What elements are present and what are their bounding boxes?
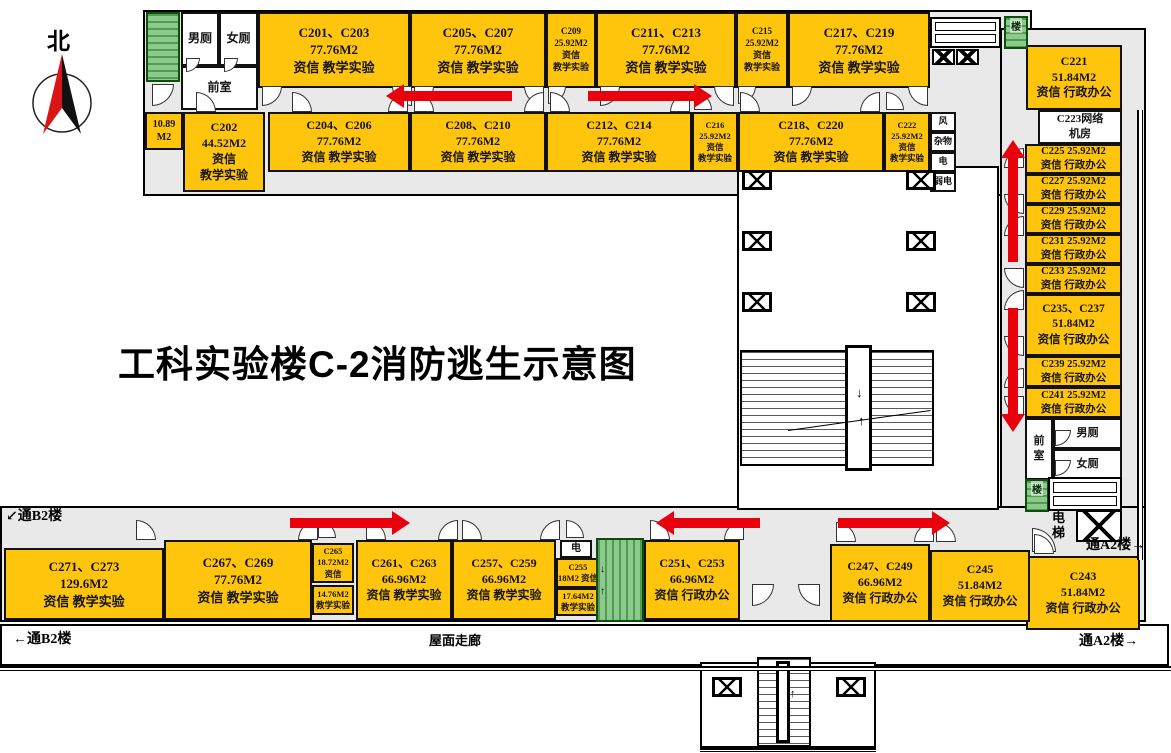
diagram-title: 工科实验楼C-2消防逃生示意图 bbox=[118, 334, 637, 388]
room-wc-men-se-label: 男厕 bbox=[1077, 426, 1099, 441]
arrow-bottom-center-head bbox=[656, 511, 674, 535]
room-c235-c237-label: 51.84M2 bbox=[1052, 317, 1094, 332]
room-c255-label: C255 bbox=[569, 562, 588, 573]
room-c208-c210-label: 资信 教学实验 bbox=[440, 150, 515, 166]
room-c239-label: C239 25.92M2 bbox=[1041, 358, 1106, 372]
slots-north-slot bbox=[935, 34, 996, 43]
room-svc-weak-electric-label: 弱电 bbox=[934, 176, 952, 188]
room-c201-c203-label: 资信 教学实验 bbox=[293, 59, 374, 76]
room-c205-c207-label: 77.76M2 bbox=[454, 41, 502, 58]
room-c243-label: 51.84M2 bbox=[1061, 585, 1105, 601]
room-c247-c249-label: C247、C249 bbox=[847, 559, 912, 575]
room-c222: C22225.92M2资信教学实验 bbox=[884, 112, 930, 172]
room-svc-electric-south-label: 电 bbox=[571, 542, 581, 555]
room-c231-label: 资信 行政办公 bbox=[1041, 249, 1107, 263]
room-c201-c203-label: C201、C203 bbox=[299, 24, 370, 41]
room-c233: C233 25.92M2资信 行政办公 bbox=[1025, 264, 1122, 294]
room-c233-label: 资信 行政办公 bbox=[1041, 279, 1107, 293]
room-c255-south-label: 教学实验 bbox=[561, 602, 595, 613]
room-c223-network-room: C223网络机房 bbox=[1038, 110, 1122, 144]
column-icon bbox=[742, 170, 772, 190]
arrow-right-down-body bbox=[1008, 308, 1018, 415]
column-icon bbox=[712, 677, 742, 697]
room-c205-c207: C205、C20777.76M2资信 教学实验 bbox=[410, 12, 546, 88]
room-c241: C241 25.92M2资信 行政办公 bbox=[1025, 387, 1122, 418]
room-c255-south-label: 17.64M2 bbox=[562, 591, 593, 602]
room-c208-c210-label: 77.76M2 bbox=[456, 134, 500, 150]
room-c227-label: C227 25.92M2 bbox=[1041, 175, 1106, 189]
slots-southeast bbox=[1048, 477, 1122, 511]
room-c218-c220-label: 资信 教学实验 bbox=[773, 150, 848, 166]
room-c215-label: C215 bbox=[752, 26, 772, 38]
room-vestibule-nw: 前室 bbox=[181, 66, 258, 110]
room-c208-c210: C208、C21077.76M2资信 教学实验 bbox=[410, 112, 546, 172]
room-c265-south-label: 教学实验 bbox=[316, 600, 350, 611]
room-c245-label: 51.84M2 bbox=[958, 578, 1002, 594]
room-c222-label: C222 bbox=[898, 120, 917, 131]
room-c223-network-room-label: C223网络 bbox=[1057, 112, 1103, 127]
arrow-top-west-body bbox=[403, 91, 512, 101]
room-c215: C21525.92M2资信教学实验 bbox=[736, 12, 788, 88]
room-vestibule-se-label: 室 bbox=[1034, 449, 1045, 464]
room-c215-label: 资信 bbox=[753, 50, 771, 62]
room-c247-c249: C247、C24966.96M2资信 行政办公 bbox=[830, 544, 930, 622]
column-icon bbox=[742, 292, 772, 312]
room-c209-label: 资信 bbox=[562, 50, 580, 62]
room-c215-label: 25.92M2 bbox=[745, 38, 778, 50]
room-c267-c269-label: 资信 教学实验 bbox=[197, 589, 278, 606]
room-wc-women-se-label: 女厕 bbox=[1077, 457, 1099, 472]
room-c229-label: C229 25.92M2 bbox=[1041, 205, 1106, 219]
room-wc-men-nw-label: 男厕 bbox=[188, 31, 212, 47]
room-c241-label: 资信 行政办公 bbox=[1041, 403, 1107, 417]
room-wc-women-nw-label: 女厕 bbox=[226, 31, 250, 47]
room-c212-c214-label: 77.76M2 bbox=[597, 134, 641, 150]
room-c217-c219: C217、C21977.76M2资信 教学实验 bbox=[788, 12, 930, 88]
room-c265-south-label: 14.76M2 bbox=[317, 589, 348, 600]
room-c221-label: 资信 行政办公 bbox=[1036, 85, 1111, 101]
room-c271-c273-label: C271、C273 bbox=[49, 558, 120, 575]
room-c212-c214-label: 资信 教学实验 bbox=[581, 150, 656, 166]
arrow-top-west-head bbox=[386, 84, 404, 108]
room-c233-label: C233 25.92M2 bbox=[1041, 265, 1106, 279]
room-c211-c213-label: 资信 教学实验 bbox=[625, 59, 706, 76]
room-c218-c220: C218、C22077.76M2资信 教学实验 bbox=[738, 112, 884, 172]
room-c257-c259: C257、C25966.96M2资信 教学实验 bbox=[452, 540, 556, 620]
room-c265: C26518.72M2资信 bbox=[312, 543, 354, 583]
room-c265-label: C265 bbox=[324, 546, 343, 557]
room-c225-label: C225 25.92M2 bbox=[1041, 145, 1106, 159]
stair-northeast: 楼 bbox=[1004, 16, 1028, 49]
room-svc-electric-label: 电 bbox=[938, 156, 947, 168]
room-c212-c214-label: C212、C214 bbox=[586, 118, 651, 134]
room-c229: C229 25.92M2资信 行政办公 bbox=[1025, 204, 1122, 234]
room-c247-c249-label: 资信 行政办公 bbox=[842, 591, 917, 607]
arrow-bottom-west-body bbox=[290, 518, 393, 528]
slots-north bbox=[930, 17, 1001, 48]
room-c271-c273-label: 资信 教学实验 bbox=[43, 593, 124, 610]
column-icon bbox=[742, 231, 772, 251]
arrow-top-east-body bbox=[588, 91, 695, 101]
room-c227-label: 资信 行政办公 bbox=[1041, 189, 1107, 203]
floor-plan-canvas: 北 工科实验楼C-2消防逃生示意图 C201、C20377.76M2资信 教学实… bbox=[0, 0, 1171, 753]
room-c251-c253: C251、C25366.96M2资信 行政办公 bbox=[644, 540, 740, 620]
wall-roof-south bbox=[0, 666, 1171, 671]
label-stair-arrow-down-central: ↓ bbox=[856, 386, 863, 401]
label-stair-arrow-up-central: ↑ bbox=[858, 414, 865, 429]
room-c216: C21625.92M2资信教学实验 bbox=[692, 112, 738, 172]
room-c216-label: 教学实验 bbox=[698, 153, 732, 164]
room-room-10-89-label: M2 bbox=[157, 131, 171, 144]
room-c255: C25518M2 资信 bbox=[556, 558, 600, 588]
room-c231-label: C231 25.92M2 bbox=[1041, 235, 1106, 249]
room-c221: C22151.84M2资信 行政办公 bbox=[1026, 45, 1122, 110]
room-c208-c210-label: C208、C210 bbox=[445, 118, 510, 134]
label-to-a2-lower: 通A2楼→ bbox=[1076, 634, 1141, 650]
room-room-10-89: 10.89M2 bbox=[145, 112, 183, 150]
room-svc-wind-label: 风 bbox=[938, 116, 947, 128]
room-c245-label: C245 bbox=[967, 562, 994, 578]
room-svc-sundries: 杂物 bbox=[930, 132, 956, 152]
room-c265-south: 14.76M2教学实验 bbox=[312, 585, 354, 615]
column-icon bbox=[906, 292, 936, 312]
room-vestibule-se-label: 前 bbox=[1034, 434, 1045, 449]
label-elevator-se: 电 梯 bbox=[1052, 511, 1065, 540]
room-c222-label: 教学实验 bbox=[890, 153, 924, 164]
room-c261-c263-label: 66.96M2 bbox=[382, 572, 426, 588]
room-c243-label: 资信 行政办公 bbox=[1045, 601, 1120, 617]
room-c204-c206-label: C204、C206 bbox=[306, 118, 371, 134]
arrow-top-east-head bbox=[694, 84, 712, 108]
stair-northwest bbox=[146, 12, 180, 82]
room-c243: C24351.84M2资信 行政办公 bbox=[1026, 556, 1140, 630]
room-c261-c263-label: 资信 教学实验 bbox=[366, 588, 441, 604]
label-to-a2-right: 通A2楼→ bbox=[1086, 538, 1145, 554]
label-to-b2-lower: ←通B2楼 bbox=[10, 632, 74, 648]
room-svc-electric-south: 电 bbox=[560, 540, 592, 558]
room-c225-label: 资信 行政办公 bbox=[1041, 159, 1107, 173]
arrow-bottom-west-head bbox=[392, 511, 410, 535]
elevator-hatch-n2 bbox=[956, 49, 979, 65]
room-c247-c249-label: 66.96M2 bbox=[858, 575, 902, 591]
arrow-bottom-east-head bbox=[932, 511, 950, 535]
room-c202-label: 44.52M2 bbox=[202, 136, 246, 152]
room-c209: C20925.92M2资信教学实验 bbox=[546, 12, 596, 88]
room-c211-c213: C211、C21377.76M2资信 教学实验 bbox=[596, 12, 736, 88]
room-c267-c269-label: C267、C269 bbox=[203, 554, 274, 571]
slots-southeast-slot bbox=[1053, 496, 1117, 507]
slots-southeast-slot bbox=[1053, 482, 1117, 493]
room-c209-label: 25.92M2 bbox=[554, 38, 587, 50]
label-stair-arrow-down-south: ↓ bbox=[600, 564, 605, 575]
label-stub-arrow: ↑ bbox=[790, 688, 796, 700]
room-c255-label: 18M2 资信 bbox=[558, 573, 598, 584]
room-c243-label: C243 bbox=[1070, 569, 1097, 585]
room-c209-label: 教学实验 bbox=[553, 62, 589, 74]
room-svc-wind: 风 bbox=[930, 112, 956, 132]
room-c261-c263-label: C261、C263 bbox=[371, 556, 436, 572]
room-vestibule-se: 前室 bbox=[1025, 418, 1053, 480]
room-c209-label: C209 bbox=[561, 26, 581, 38]
room-c222-label: 25.92M2 bbox=[891, 131, 922, 142]
room-vestibule-nw-label: 前室 bbox=[207, 80, 231, 96]
room-c202-label: 教学实验 bbox=[200, 168, 248, 184]
room-c271-c273-label: 129.6M2 bbox=[60, 575, 108, 592]
elevator-hatch-n1 bbox=[932, 49, 955, 65]
room-c225: C225 25.92M2资信 行政办公 bbox=[1025, 144, 1122, 174]
room-c245-label: 资信 行政办公 bbox=[942, 594, 1017, 610]
room-c217-c219-label: C217、C219 bbox=[824, 24, 895, 41]
room-c245: C24551.84M2资信 行政办公 bbox=[930, 550, 1030, 622]
wall-stub-south bbox=[700, 748, 876, 752]
room-c218-c220-label: 77.76M2 bbox=[789, 134, 833, 150]
room-c222-label: 资信 bbox=[898, 142, 915, 153]
room-svc-sundries-label: 杂物 bbox=[934, 136, 952, 148]
room-c216-label: 25.92M2 bbox=[699, 131, 730, 142]
stair-southeast-label: 楼 bbox=[1031, 481, 1043, 496]
room-c201-c203-label: 77.76M2 bbox=[310, 41, 358, 58]
room-c267-c269-label: 77.76M2 bbox=[214, 571, 262, 588]
column-icon bbox=[906, 170, 936, 190]
room-c227: C227 25.92M2资信 行政办公 bbox=[1025, 174, 1122, 204]
room-c201-c203: C201、C20377.76M2资信 教学实验 bbox=[258, 12, 410, 88]
room-c251-c253-label: 66.96M2 bbox=[670, 572, 714, 588]
room-c212-c214: C212、C21477.76M2资信 教学实验 bbox=[546, 112, 692, 172]
room-c205-c207-label: C205、C207 bbox=[443, 24, 514, 41]
staircase-central-treads bbox=[740, 350, 934, 466]
label-to-b2-upper: ↙通B2楼 bbox=[6, 509, 62, 525]
room-c251-c253-label: C251、C253 bbox=[659, 556, 724, 572]
room-c257-c259-label: 资信 教学实验 bbox=[466, 588, 541, 604]
room-c223-network-room-label: 机房 bbox=[1069, 127, 1091, 142]
room-c257-c259-label: C257、C259 bbox=[471, 556, 536, 572]
room-c255-south: 17.64M2教学实验 bbox=[556, 588, 600, 616]
room-c251-c253-label: 资信 行政办公 bbox=[654, 588, 729, 604]
column-icon bbox=[836, 677, 866, 697]
room-c211-c213-label: 77.76M2 bbox=[642, 41, 690, 58]
slots-north-slot bbox=[935, 22, 996, 31]
room-c202: C20244.52M2资信教学实验 bbox=[183, 112, 265, 192]
staircase-stub-spine bbox=[776, 661, 790, 743]
room-c217-c219-label: 资信 教学实验 bbox=[818, 59, 899, 76]
arrow-bottom-center-body bbox=[673, 518, 760, 528]
room-c271-c273: C271、C273129.6M2资信 教学实验 bbox=[4, 548, 164, 620]
column-icon bbox=[906, 231, 936, 251]
room-c235-c237-label: 资信 行政办公 bbox=[1038, 333, 1110, 348]
room-c239: C239 25.92M2资信 行政办公 bbox=[1025, 356, 1122, 387]
room-c241-label: C241 25.92M2 bbox=[1041, 389, 1106, 403]
label-stair-arrow-up-south: ↑ bbox=[600, 586, 605, 597]
room-c265-label: 资信 bbox=[324, 569, 341, 580]
room-c204-c206: C204、C20677.76M2资信 教学实验 bbox=[268, 112, 410, 172]
room-room-10-89-label: 10.89 bbox=[153, 118, 176, 131]
room-c221-label: C221 bbox=[1061, 54, 1088, 70]
room-c202-label: 资信 bbox=[212, 152, 236, 168]
wall-right-double bbox=[1137, 110, 1143, 560]
stair-south bbox=[596, 538, 644, 622]
room-c218-c220-label: C218、C220 bbox=[778, 118, 843, 134]
room-c265-label: 18.72M2 bbox=[317, 557, 348, 568]
arrow-right-down-head bbox=[1001, 414, 1025, 432]
stair-southeast: 楼 bbox=[1025, 479, 1049, 512]
room-c231: C231 25.92M2资信 行政办公 bbox=[1025, 234, 1122, 264]
room-c211-c213-label: C211、C213 bbox=[631, 24, 701, 41]
room-c204-c206-label: 资信 教学实验 bbox=[301, 150, 376, 166]
compass-icon bbox=[28, 48, 100, 140]
room-c216-label: 资信 bbox=[706, 142, 723, 153]
arrow-right-up-head bbox=[1001, 140, 1025, 158]
room-c204-c206-label: 77.76M2 bbox=[317, 134, 361, 150]
staircase-central-spine bbox=[845, 345, 872, 471]
arrow-bottom-east-body bbox=[838, 518, 933, 528]
room-c257-c259-label: 66.96M2 bbox=[482, 572, 526, 588]
room-c221-label: 51.84M2 bbox=[1052, 70, 1096, 86]
room-c235-c237: C235、C23751.84M2资信 行政办公 bbox=[1025, 294, 1122, 356]
room-c216-label: C216 bbox=[706, 120, 725, 131]
stair-northeast-label: 楼 bbox=[1010, 18, 1022, 33]
room-svc-electric: 电 bbox=[930, 152, 956, 172]
room-c235-c237-label: C235、C237 bbox=[1042, 302, 1105, 317]
room-c205-c207-label: 资信 教学实验 bbox=[437, 59, 518, 76]
room-c217-c219-label: 77.76M2 bbox=[835, 41, 883, 58]
room-c239-label: 资信 行政办公 bbox=[1041, 372, 1107, 386]
room-c215-label: 教学实验 bbox=[744, 62, 780, 74]
roof-corridor bbox=[0, 624, 1169, 666]
room-c267-c269: C267、C26977.76M2资信 教学实验 bbox=[164, 540, 312, 620]
room-c202-label: C202 bbox=[211, 120, 238, 136]
arrow-right-up-body bbox=[1008, 157, 1018, 262]
room-c229-label: 资信 行政办公 bbox=[1041, 219, 1107, 233]
label-roof-corridor: 屋面走廊 bbox=[426, 634, 484, 649]
room-c261-c263: C261、C26366.96M2资信 教学实验 bbox=[356, 540, 452, 620]
